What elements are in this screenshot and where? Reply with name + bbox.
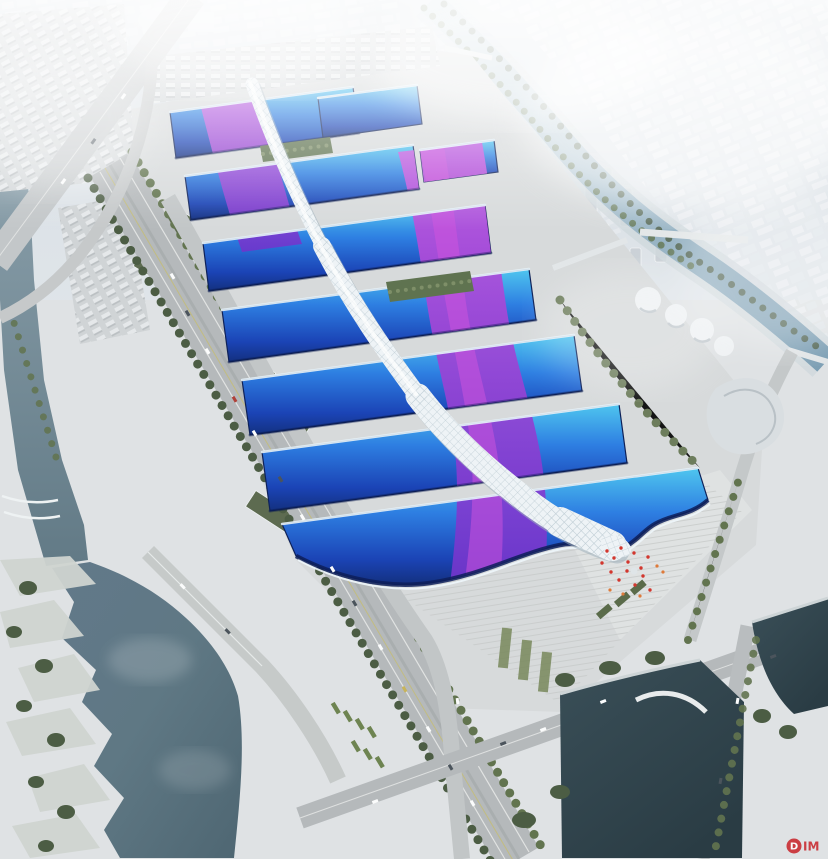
aerial-rendering: D IM xyxy=(0,0,828,859)
watermark-text: IM xyxy=(803,840,819,854)
entrance-sphere xyxy=(631,568,638,575)
cloud-reflection xyxy=(159,750,231,790)
screenshot-canvas: D IM xyxy=(0,0,828,859)
watermark-badge-letter: D xyxy=(790,842,798,853)
watermark: D IM xyxy=(787,839,820,854)
pond-water xyxy=(560,660,744,858)
cloud-reflection xyxy=(108,638,192,682)
